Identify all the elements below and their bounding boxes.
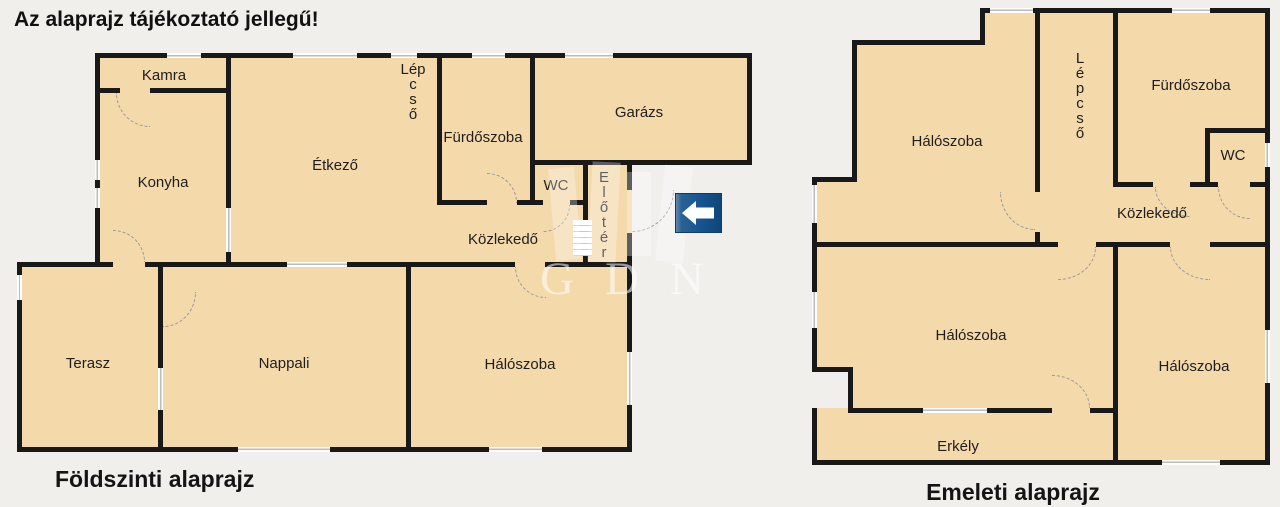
window <box>167 53 201 58</box>
room-lepcso-label: L é p c s ő <box>1076 51 1084 141</box>
ground-floor-caption: Földszinti alaprajz <box>55 466 254 493</box>
window <box>627 352 632 405</box>
watermark-logo-bar <box>627 172 651 256</box>
wall <box>852 40 857 182</box>
window <box>95 160 100 180</box>
room-haloszoba1-label: Hálószoba <box>912 133 983 150</box>
window <box>812 292 817 328</box>
window <box>158 368 163 410</box>
window <box>990 8 1033 13</box>
wall <box>437 53 442 205</box>
wall <box>852 40 985 45</box>
outside-notch <box>810 367 848 408</box>
room-kozlekedo-label: Közlekedő <box>468 231 538 248</box>
window <box>238 447 330 452</box>
room-erkely-label: Erkély <box>937 438 979 455</box>
room-konyha-label: Konyha <box>138 174 189 191</box>
upper-section-fill <box>814 179 856 242</box>
room-kozlekedo-label: Közlekedő <box>1117 205 1187 222</box>
door-opening <box>1052 408 1090 413</box>
upper-floor-caption: Emeleti alaprajz <box>926 479 1100 506</box>
wall <box>530 53 535 205</box>
room-terasz-label: Terasz <box>66 355 110 372</box>
window <box>226 208 231 252</box>
window <box>472 53 505 58</box>
left-arrow-sign <box>675 193 722 233</box>
wall <box>812 408 817 465</box>
window <box>391 53 417 58</box>
wall <box>812 367 853 372</box>
arrow-left-icon <box>676 194 721 232</box>
wall <box>1113 242 1118 465</box>
room-garazs-label: Garázs <box>615 104 663 121</box>
door-opening <box>113 262 145 267</box>
window <box>1172 8 1210 13</box>
window <box>293 53 357 58</box>
watermark-text: GDN <box>540 252 735 306</box>
watermark-logo-bar <box>587 161 620 262</box>
window <box>812 185 817 223</box>
wall <box>848 367 853 413</box>
room-etkezo-label: Étkező <box>312 157 358 174</box>
wall <box>1205 128 1270 133</box>
disclaimer-title: Az alaprajz tájékoztató jellegű! <box>14 8 319 32</box>
window <box>95 188 100 208</box>
floorplan-image: Az alaprajz tájékoztató jellegű! <box>0 0 1280 507</box>
window <box>287 262 347 267</box>
room-kamra-label: Kamra <box>142 67 186 84</box>
door-opening <box>1035 192 1040 232</box>
wall <box>1113 8 1118 187</box>
room-furdoszoba-label: Fürdőszoba <box>1151 77 1230 94</box>
room-haloszoba3-label: Hálószoba <box>1159 358 1230 375</box>
wall <box>158 262 163 452</box>
wall <box>1205 128 1210 187</box>
window <box>489 447 542 452</box>
wall <box>747 53 752 165</box>
room-haloszoba2-label: Hálószoba <box>936 327 1007 344</box>
window <box>923 408 987 413</box>
room-wc-label: WC <box>1221 147 1246 164</box>
room-furdoszoba-label: Fürdőszoba <box>443 129 522 146</box>
room-lepcso-label: Lép c s ő <box>400 62 425 122</box>
window <box>1162 460 1220 465</box>
window <box>565 53 613 58</box>
window <box>1265 143 1270 167</box>
wall <box>406 262 411 452</box>
wall <box>1265 8 1270 465</box>
wall <box>530 160 752 165</box>
room-nappali-label: Nappali <box>259 355 310 372</box>
wall <box>812 177 857 182</box>
window <box>17 275 22 300</box>
room-haloszoba-label: Hálószoba <box>485 356 556 373</box>
window <box>1265 330 1270 383</box>
